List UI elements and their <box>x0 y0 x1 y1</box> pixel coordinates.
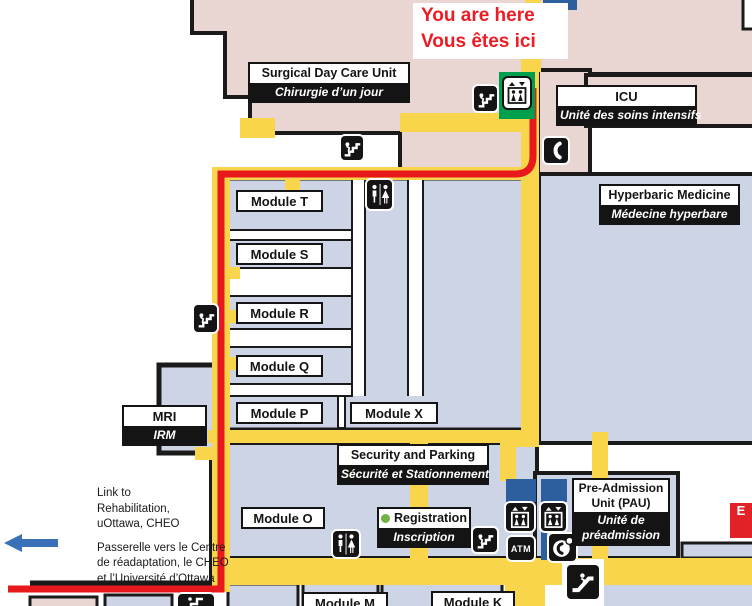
registration-dot <box>381 514 390 523</box>
label-mri: MRI IRM <box>122 405 207 446</box>
link-note-fr: Passerelle vers le Centre de réadaptatio… <box>97 541 277 588</box>
corridor-mid <box>208 430 532 443</box>
bottom-right-strip <box>682 543 752 558</box>
hyperbaric-label-en: Hyperbaric Medicine <box>601 186 738 205</box>
washroom-icon <box>365 178 394 211</box>
icu-label-en: ICU <box>558 87 695 106</box>
atm-icon-label: ATM <box>511 544 531 554</box>
elevator-icon <box>502 76 532 110</box>
bottom-building-a <box>228 584 298 606</box>
security-label-fr: Sécurité et Stationnement <box>339 465 487 483</box>
stairs-icon <box>472 84 499 113</box>
elevator-icon <box>539 501 568 533</box>
security-label-en: Security and Parking <box>339 446 487 465</box>
label-module-k: Module K <box>431 591 515 606</box>
label-module-x: Module X <box>350 402 438 424</box>
stub-mri <box>195 447 212 460</box>
bottom-left-building-a <box>30 597 97 606</box>
inner-hall-west <box>351 180 366 396</box>
atm-icon: ATM <box>506 535 536 562</box>
stub-module-s <box>228 267 240 279</box>
inner-hall-east <box>407 180 424 396</box>
room-gap-4 <box>219 383 353 397</box>
label-registration: Registration Inscription <box>377 507 471 548</box>
entrance-e-marker: E <box>727 500 752 538</box>
escalator-icon <box>565 563 601 601</box>
label-module-m: Module M <box>302 592 388 606</box>
label-surgical-day-care: Surgical Day Care Unit Chirurgie d’un jo… <box>248 62 410 103</box>
link-rehabilitation-note: Link to Rehabilitation, uOttawa, CHEO Pa… <box>97 486 277 587</box>
telephone-icon <box>542 136 570 165</box>
pau-label-fr: Unité de préadmission <box>574 512 668 544</box>
hyperbaric-label-fr: Médecine hyperbare <box>601 205 738 223</box>
room-gap-3 <box>219 328 353 348</box>
stairs-icon <box>176 592 216 606</box>
label-module-p: Module P <box>236 402 323 424</box>
surgical-label-fr: Chirurgie d’un jour <box>250 83 408 101</box>
icu-label-fr: Unité des soins intensifs <box>558 106 695 124</box>
label-module-s: Module S <box>236 243 323 265</box>
top-right-notch <box>743 0 752 29</box>
room-gap-5 <box>337 395 346 429</box>
label-security-parking: Security and Parking Sécurité et Station… <box>337 444 489 485</box>
you-are-here-text-en: You are here <box>421 3 568 29</box>
north-east-building-shape <box>538 0 752 74</box>
label-hyperbaric: Hyperbaric Medicine Médecine hyperbare <box>599 184 740 225</box>
surgical-label-en: Surgical Day Care Unit <box>250 64 408 83</box>
stairs-icon <box>339 134 365 162</box>
you-are-here-text-fr: Vous êtes ici <box>421 29 568 55</box>
washroom-icon <box>331 529 361 559</box>
you-are-here-marker: You are here Vous êtes ici <box>413 3 568 59</box>
label-pre-admission: Pre-Admission Unit (PAU) Unité de préadm… <box>572 478 670 546</box>
stairs-icon <box>192 303 219 334</box>
elevator-icon <box>504 501 536 533</box>
entrance-e-label: E <box>737 503 746 518</box>
label-module-q: Module Q <box>236 355 323 377</box>
mri-label-fr: IRM <box>124 426 205 444</box>
link-note-en: Link to Rehabilitation, uOttawa, CHEO <box>97 486 277 533</box>
label-icu: ICU Unité des soins intensifs <box>556 85 697 126</box>
label-module-t: Module T <box>236 190 323 212</box>
mri-label-en: MRI <box>124 407 205 426</box>
elevator-shaft-1 <box>506 479 536 502</box>
link-arrow-icon <box>4 534 58 552</box>
stairs-icon <box>471 526 499 554</box>
pau-label-en: Pre-Admission Unit (PAU) <box>574 480 668 512</box>
room-gap-1 <box>219 229 353 241</box>
label-module-r: Module R <box>236 302 323 324</box>
registration-label-en: Registration <box>379 509 469 528</box>
corridor-south <box>225 558 752 585</box>
elevator-shaft-2 <box>541 479 567 502</box>
bottom-left-building-b <box>105 595 172 606</box>
registration-label-fr: Inscription <box>379 528 469 546</box>
corridor-to-elevators <box>500 441 516 481</box>
corridor-upper-stub <box>240 118 275 138</box>
hospital-floor-map: ATM You are here Vous êtes ici Surgical … <box>0 0 752 606</box>
